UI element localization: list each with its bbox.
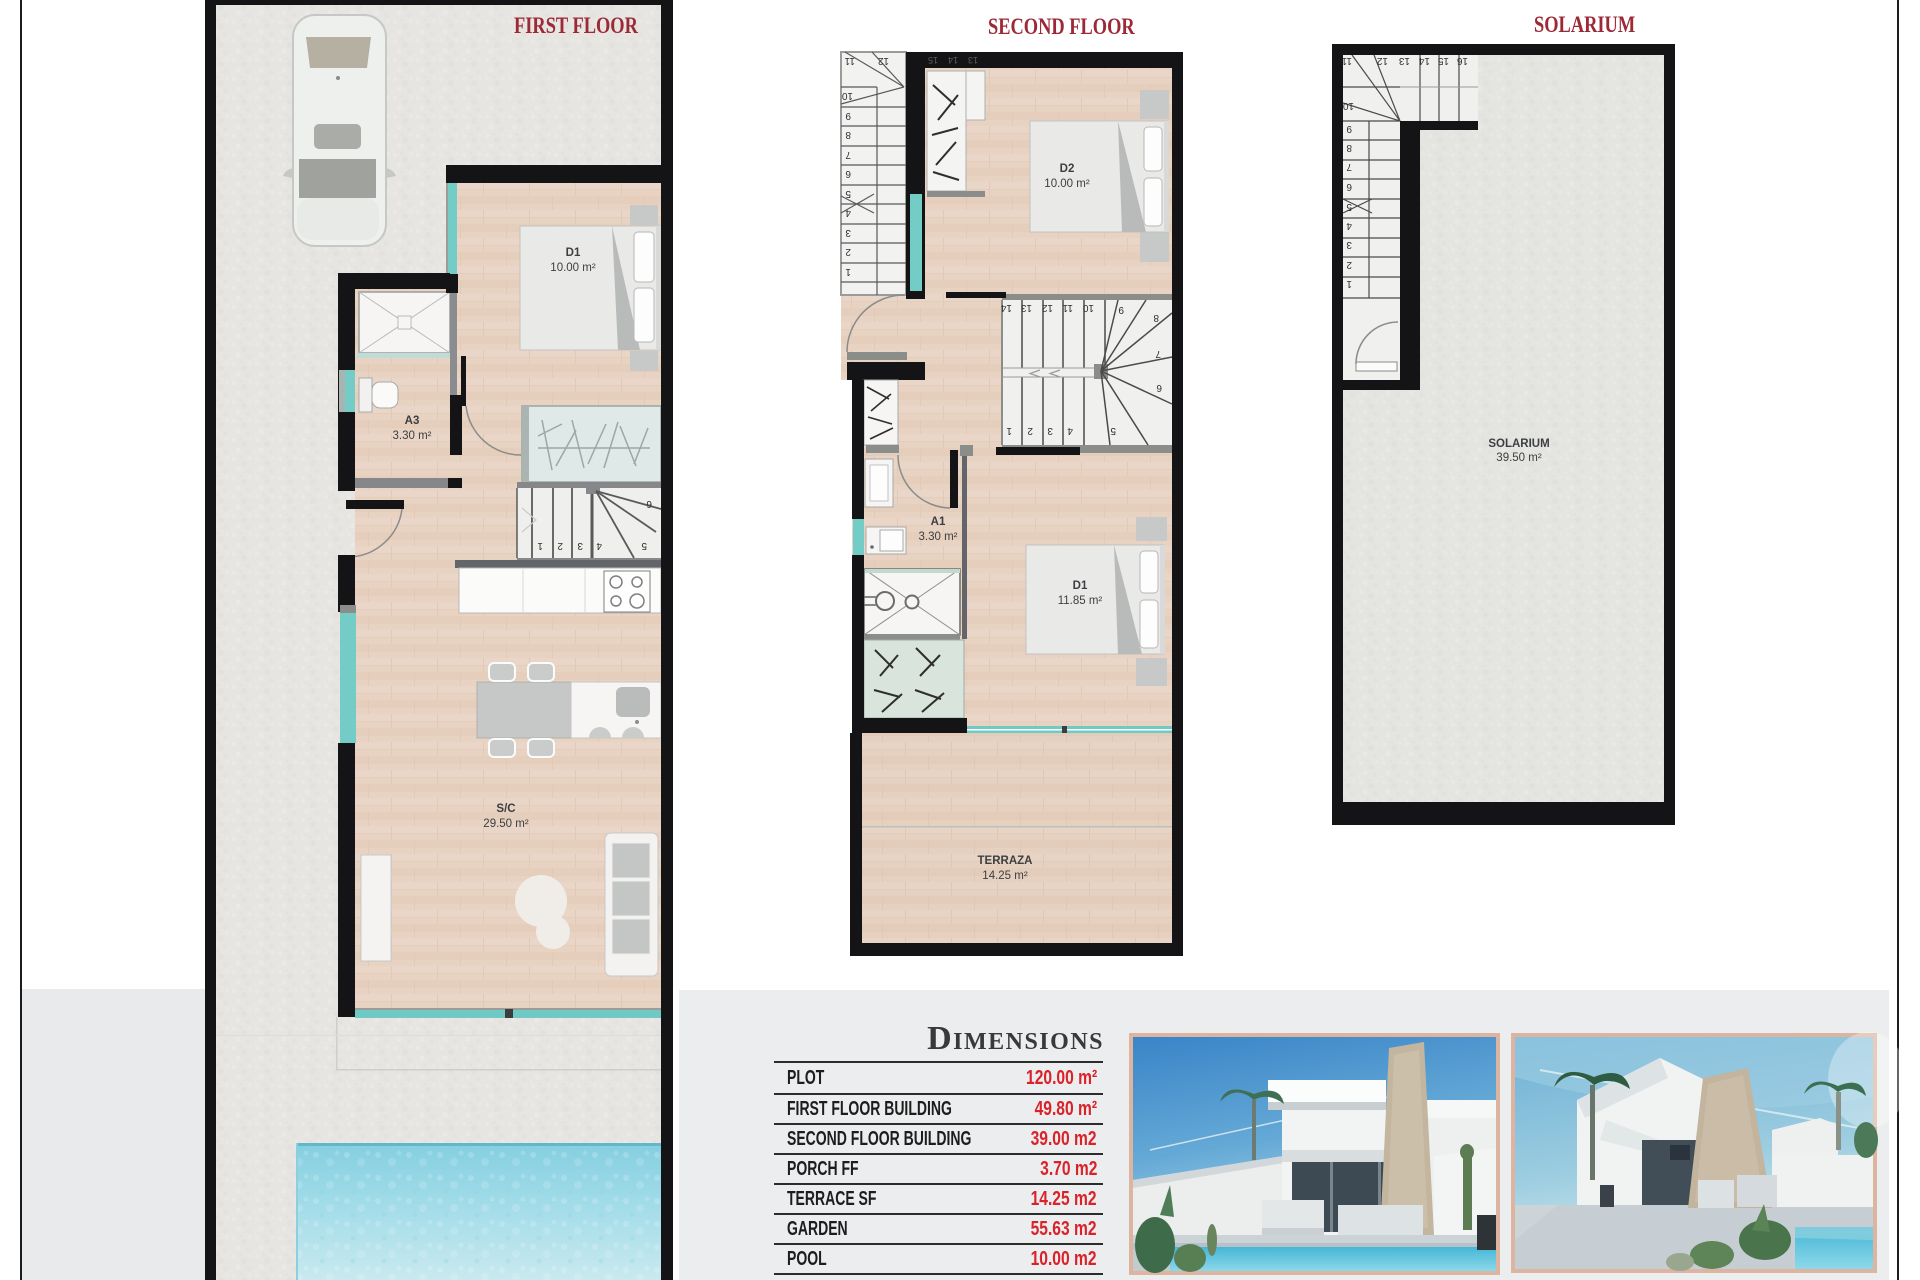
svg-text:2: 2	[557, 540, 563, 551]
svg-text:10: 10	[1342, 100, 1354, 111]
svg-text:1: 1	[845, 266, 851, 277]
svg-text:10: 10	[1082, 302, 1094, 313]
svg-text:1: 1	[1006, 425, 1012, 436]
svg-text:6: 6	[845, 168, 851, 179]
svg-text:9: 9	[1118, 304, 1124, 315]
svg-text:13: 13	[968, 55, 978, 65]
svg-text:A1: A1	[931, 516, 946, 528]
svg-text:4: 4	[596, 540, 602, 551]
svg-text:7: 7	[1346, 161, 1352, 172]
svg-text:8: 8	[845, 129, 851, 140]
svg-text:S/C: S/C	[496, 803, 515, 815]
svg-text:12: 12	[877, 55, 889, 66]
svg-text:4: 4	[1067, 425, 1073, 436]
svg-text:4: 4	[1346, 220, 1352, 231]
svg-text:5: 5	[845, 188, 851, 199]
svg-text:11: 11	[1062, 302, 1073, 313]
svg-text:14: 14	[948, 55, 958, 65]
svg-text:3: 3	[1047, 425, 1053, 436]
svg-text:SOLARIUM: SOLARIUM	[1488, 438, 1549, 450]
svg-text:2: 2	[1346, 259, 1352, 270]
svg-text:1: 1	[1346, 278, 1352, 289]
svg-text:3.30 m²: 3.30 m²	[393, 430, 432, 442]
svg-text:5: 5	[1346, 201, 1352, 212]
svg-text:14.25 m²: 14.25 m²	[982, 870, 1028, 882]
svg-text:2: 2	[1027, 425, 1033, 436]
svg-text:10.00 m²: 10.00 m²	[1044, 178, 1090, 190]
svg-text:1: 1	[537, 540, 543, 551]
svg-text:6: 6	[1156, 382, 1162, 393]
svg-text:5: 5	[1110, 425, 1116, 436]
svg-text:8: 8	[1153, 312, 1159, 323]
svg-text:3: 3	[577, 540, 583, 551]
svg-text:12: 12	[1041, 302, 1053, 313]
svg-text:TERRAZA: TERRAZA	[978, 855, 1033, 867]
svg-text:39.50 m²: 39.50 m²	[1496, 452, 1542, 464]
svg-text:14: 14	[1000, 302, 1012, 313]
svg-text:7: 7	[845, 149, 851, 160]
svg-text:3: 3	[845, 227, 851, 238]
svg-text:D2: D2	[1060, 163, 1075, 175]
svg-text:13: 13	[1020, 302, 1032, 313]
svg-text:14: 14	[1418, 55, 1430, 66]
svg-text:6: 6	[1346, 181, 1352, 192]
svg-text:16: 16	[1456, 55, 1468, 66]
svg-text:10.00 m²: 10.00 m²	[550, 262, 596, 274]
svg-text:15: 15	[928, 55, 938, 65]
svg-text:2: 2	[845, 246, 851, 257]
svg-text:7: 7	[1155, 348, 1161, 359]
svg-text:29.50 m²: 29.50 m²	[483, 818, 529, 830]
svg-text:9: 9	[1346, 123, 1352, 134]
svg-text:8: 8	[1346, 142, 1352, 153]
svg-text:15: 15	[1437, 55, 1449, 66]
svg-text:5: 5	[641, 540, 647, 551]
svg-text:3: 3	[1346, 239, 1352, 250]
svg-text:13: 13	[1398, 55, 1410, 66]
svg-text:11: 11	[844, 55, 855, 66]
svg-text:4: 4	[845, 207, 851, 218]
svg-text:10: 10	[841, 90, 853, 101]
svg-text:11.85 m²: 11.85 m²	[1058, 595, 1103, 607]
svg-text:D1: D1	[1073, 580, 1088, 592]
svg-text:D1: D1	[566, 247, 581, 259]
svg-text:9: 9	[845, 110, 851, 121]
svg-text:12: 12	[1376, 55, 1388, 66]
svg-text:3.30 m²: 3.30 m²	[919, 531, 958, 543]
svg-text:A3: A3	[405, 415, 420, 427]
svg-text:6: 6	[646, 498, 652, 509]
